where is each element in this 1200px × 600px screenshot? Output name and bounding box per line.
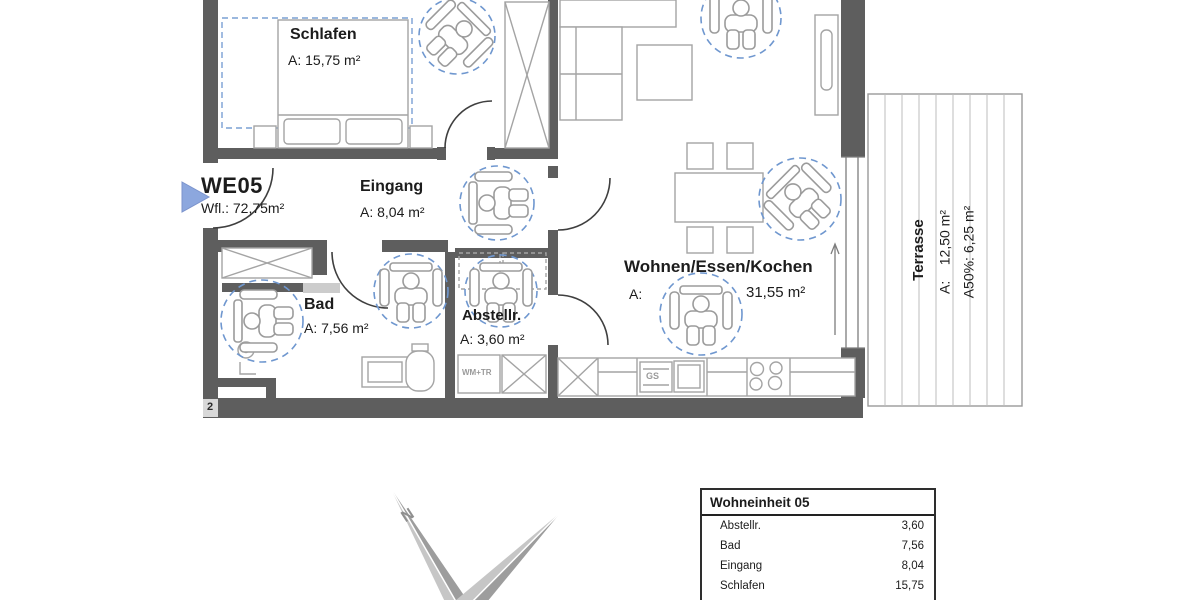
dishwasher-label: GS <box>646 372 659 382</box>
unit-area-label: Wfl.: 72,75m² <box>201 201 284 216</box>
room-label-abstellraum: Abstellr. <box>462 308 521 325</box>
room-label-terrasse: Terrasse <box>911 219 928 280</box>
washbasin <box>362 357 408 387</box>
wheelchair-icon <box>670 286 732 345</box>
room-area-bad: A: 7,56 m² <box>304 321 369 336</box>
room-label-bad: Bad <box>304 296 334 314</box>
dining-table <box>675 143 763 253</box>
room-area-wohnen: 31,55 m² <box>746 285 805 302</box>
wheelchair-icon <box>234 290 293 352</box>
floorplan-drawing <box>0 0 1200 600</box>
terrace-window <box>831 157 865 348</box>
wardrobe <box>505 2 549 148</box>
kitchen-counter <box>558 358 855 396</box>
floorplan-page: WE05 Wfl.: 72,75m² Schlafen A: 15,75 m² … <box>0 0 1200 600</box>
coffee-table <box>637 45 692 100</box>
room-area-eingang: A: 8,04 m² <box>360 205 425 220</box>
room-label-schlafen: Schlafen <box>290 26 357 44</box>
room-label-wohnen: Wohnen/Essen/Kochen <box>624 258 813 277</box>
toilet <box>406 344 434 391</box>
room-area-schlafen: A: 15,75 m² <box>288 53 360 68</box>
table-row-value: 15,75 <box>895 580 924 592</box>
table-row-room: Bad <box>720 540 740 552</box>
table-row-value: 8,04 <box>902 560 924 572</box>
room-area-prefix-wohnen: A: <box>629 287 642 302</box>
table-row: Schlafen 15,75 <box>702 576 934 596</box>
table-row-room: Schlafen <box>720 580 765 592</box>
unit-id-label: WE05 <box>201 174 263 198</box>
area-table-title: Wohneinheit 05 <box>702 490 934 516</box>
table-row: Abstellr. 3,60 <box>702 516 934 536</box>
washer-dryer-label: WM+TR <box>462 369 492 378</box>
room-area50-terrasse: A50%: 6,25 m² <box>961 206 976 299</box>
table-row: Bad 7,56 <box>702 536 934 556</box>
table-row-room: Eingang <box>720 560 762 572</box>
room-label-eingang: Eingang <box>360 178 423 196</box>
table-row-room: Abstellr. <box>720 520 761 532</box>
wheelchair-icon <box>469 172 528 234</box>
radiator <box>815 15 838 115</box>
table-row-value: 7,56 <box>902 540 924 552</box>
story-label: 2 <box>204 400 216 414</box>
wheelchair-icon <box>413 0 499 80</box>
room-area-terrasse: A: 12,50 m² <box>937 210 952 294</box>
room-area-abstellraum: A: 3,60 m² <box>460 332 525 347</box>
table-row-value: 3,60 <box>902 520 924 532</box>
table-row: Eingang 8,04 <box>702 556 934 576</box>
wheelchair-icon <box>380 263 442 322</box>
compass-rose-icon <box>388 487 561 600</box>
wheelchair-icon <box>710 0 772 49</box>
area-table: Wohneinheit 05 Abstellr. 3,60 Bad 7,56 E… <box>700 488 936 600</box>
